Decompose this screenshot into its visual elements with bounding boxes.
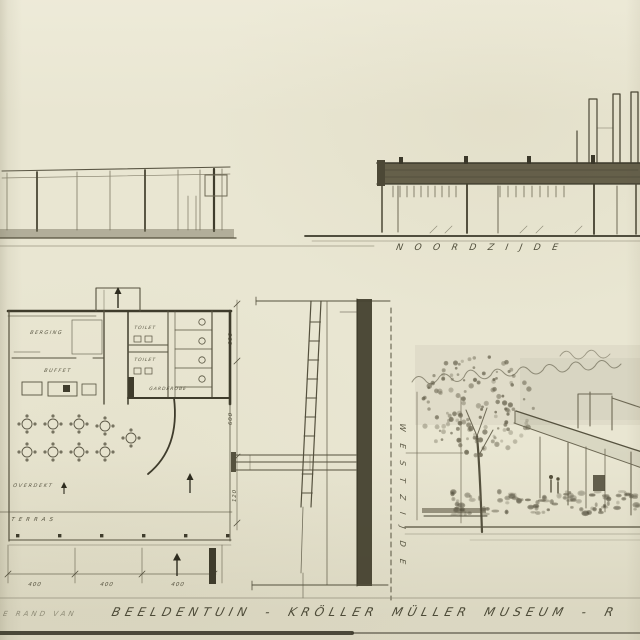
dimension-label-vertical: 600: [229, 412, 235, 425]
up-arrow-icon: [115, 287, 122, 308]
room-label-toilet-lower: TOILET: [134, 359, 157, 364]
drawing-linework: [0, 0, 640, 640]
section-side-label: WESTZIJDE: [398, 423, 406, 576]
room-label-berging: BERGING: [30, 331, 64, 336]
wall-section-drawing: [231, 297, 391, 600]
up-arrow-icon: [61, 482, 67, 494]
dimension-label: 400: [100, 583, 114, 589]
room-label-overdekt: OVERDEKT: [13, 484, 54, 489]
sheet-caption: BEELDENTUIN - KRÖLLER MÜLLER MUSEUM - R: [111, 606, 620, 618]
dimension-label: 400: [28, 583, 42, 589]
dimension-label-vertical: 600: [229, 332, 235, 345]
west-elevation-sketch: [0, 167, 374, 246]
room-label-terras: TERRAS: [11, 518, 58, 524]
room-label-buffet: BUFFET: [44, 369, 72, 374]
room-label-toilet-upper: TOILET: [134, 327, 157, 332]
caption-prefix: E RAND VAN: [2, 611, 77, 618]
dimension-label: 400: [171, 583, 185, 589]
dimension-label-vertical: 120: [233, 489, 239, 502]
north-elevation-drawing: [305, 92, 640, 241]
plan-tables-and-chairs: [17, 414, 140, 461]
architectural-drawing-sheet: NOORDZIJDE WESTZIJDE BERGING BUFFET TOIL…: [0, 0, 640, 640]
ladder-sketch: [301, 301, 321, 573]
north-elevation-label: NOORDZIJDE: [395, 244, 570, 253]
up-arrow-icon: [187, 473, 194, 493]
room-label-garderobe: GARDEROBE: [149, 388, 187, 393]
perspective-sketch: [405, 345, 640, 540]
up-arrow-icon: [173, 553, 181, 576]
